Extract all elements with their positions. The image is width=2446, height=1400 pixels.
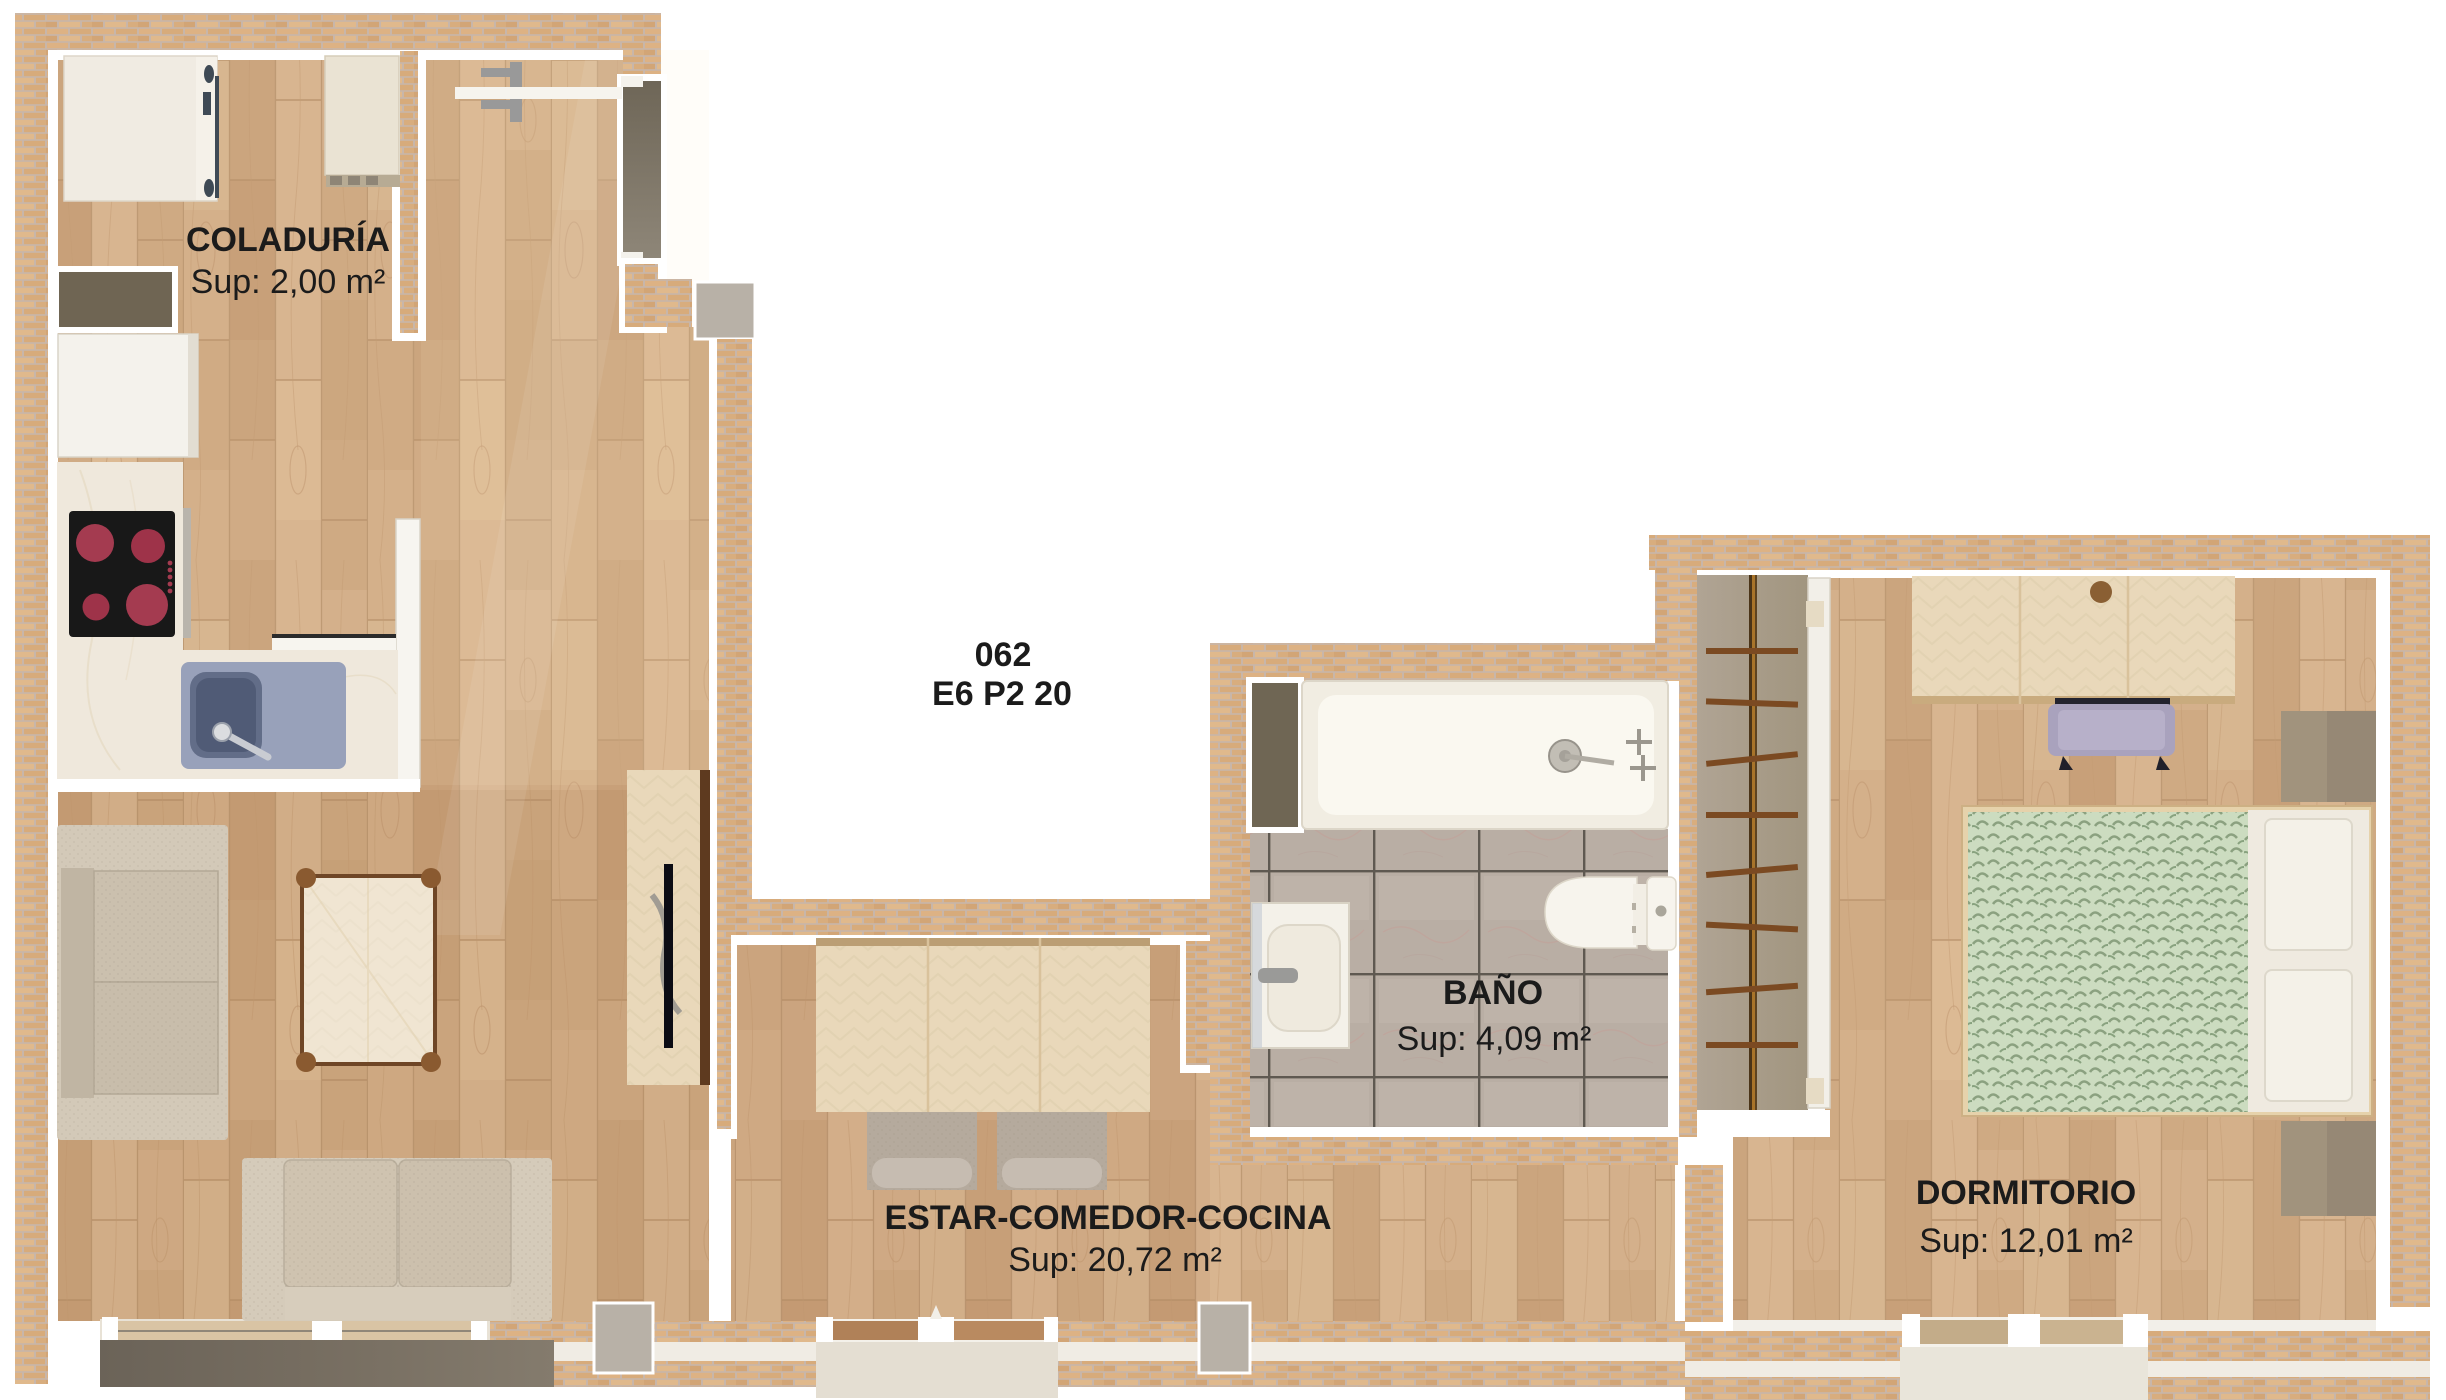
svg-text:Sup: 2,00 m²: Sup: 2,00 m² [191, 263, 386, 301]
svg-text:COLADURÍA: COLADURÍA [186, 221, 390, 259]
svg-text:062: 062 [975, 636, 1032, 674]
svg-text:Sup: 12,01 m²: Sup: 12,01 m² [1919, 1222, 2133, 1260]
svg-text:Sup: 20,72 m²: Sup: 20,72 m² [1008, 1241, 1222, 1279]
svg-text:Sup: 4,09 m²: Sup: 4,09 m² [1397, 1020, 1592, 1058]
svg-text:ESTAR-COMEDOR-COCINA: ESTAR-COMEDOR-COCINA [884, 1199, 1331, 1237]
svg-text:BAÑO: BAÑO [1443, 974, 1543, 1012]
svg-text:DORMITORIO: DORMITORIO [1916, 1174, 2136, 1212]
svg-text:E6 P2 20: E6 P2 20 [932, 675, 1072, 713]
